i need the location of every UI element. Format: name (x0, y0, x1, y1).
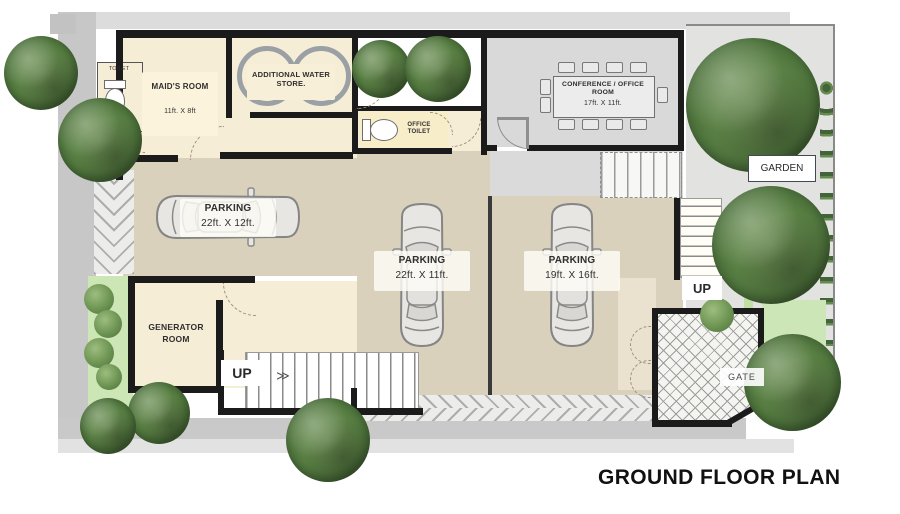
ramp-left (94, 170, 134, 274)
ramp-left-half (114, 170, 134, 274)
tree (4, 36, 78, 110)
wall-segment (674, 198, 680, 280)
toilet-bowl (370, 119, 398, 141)
wall-segment (678, 30, 684, 150)
parking-divider-wall (488, 196, 492, 395)
porch-dashed-area (600, 152, 682, 198)
wall-segment (481, 145, 497, 151)
conference-room-label: CONFERENCE / OFFICE ROOM (556, 81, 650, 97)
office-toilet-label: OFFICE TOILET (398, 122, 440, 136)
wall-segment (226, 38, 232, 118)
generator-room-label2: ROOM (138, 334, 214, 344)
garden-label-box: GARDEN (748, 155, 816, 182)
tree (405, 36, 471, 102)
parking-3-label: PARKING (530, 255, 614, 267)
driveway-strip-top (58, 12, 790, 29)
gate-label: GATE (728, 372, 756, 382)
ground-floor-plan: ≫ (0, 0, 900, 514)
office-toilet-fixture (362, 116, 398, 142)
up-right-badge: UP (682, 276, 722, 300)
chair (630, 119, 647, 130)
parking-1-label: PARKING (186, 203, 270, 215)
garden-label: GARDEN (761, 163, 804, 174)
shrub (700, 298, 734, 332)
shrub (94, 310, 122, 338)
up-left-label: UP (232, 365, 251, 381)
chair (606, 119, 623, 130)
chair (558, 119, 575, 130)
tree (128, 382, 190, 444)
toilet-label: TOILET (99, 66, 139, 73)
gate-badge: GATE (720, 368, 764, 386)
water-store-label: ADDITIONAL WATER STORE. (250, 70, 332, 88)
wall-segment (527, 145, 684, 151)
tree (80, 398, 136, 454)
wall-segment (652, 420, 732, 427)
ramp-left-half (94, 170, 114, 274)
chair (630, 62, 647, 73)
tree (712, 186, 830, 304)
driveway-stub (50, 14, 76, 34)
page-title: GROUND FLOOR PLAN (598, 466, 898, 490)
stair-arrow-icon: ≫ (268, 368, 298, 384)
tree (686, 38, 820, 172)
wall-segment (652, 308, 658, 427)
wall-segment (128, 276, 255, 283)
chair (657, 87, 668, 103)
generator-room-label: GENERATOR (138, 322, 214, 332)
wall-segment (220, 152, 353, 159)
chair (606, 62, 623, 73)
parking-3-size: 19ft. X 16ft. (526, 270, 618, 282)
chair (582, 62, 599, 73)
wall-segment (116, 30, 684, 38)
tree (352, 40, 410, 98)
wall-segment (352, 106, 483, 111)
chair (540, 79, 551, 95)
wall-segment (352, 106, 358, 154)
maids-room-label: MAID'S ROOM (150, 82, 210, 92)
wall-segment (250, 112, 352, 118)
maids-room-size: 11ft. X 8ft (146, 108, 214, 116)
chair (540, 97, 551, 113)
wall-segment (352, 148, 452, 154)
wall-segment (128, 276, 135, 393)
shrub (96, 364, 122, 390)
chair (558, 62, 575, 73)
parking-2-size: 22ft. X 11ft. (376, 270, 468, 282)
parking-2-label: PARKING (380, 255, 464, 267)
up-right-label: UP (693, 281, 711, 296)
wall-segment (481, 30, 487, 155)
tree (286, 398, 370, 482)
parking-1-size: 22ft. X 12ft. (182, 218, 274, 230)
conference-room-size: 17ft. X 11ft. (556, 100, 650, 108)
tree (58, 98, 142, 182)
chair (582, 119, 599, 130)
up-left-badge: UP (221, 360, 263, 386)
